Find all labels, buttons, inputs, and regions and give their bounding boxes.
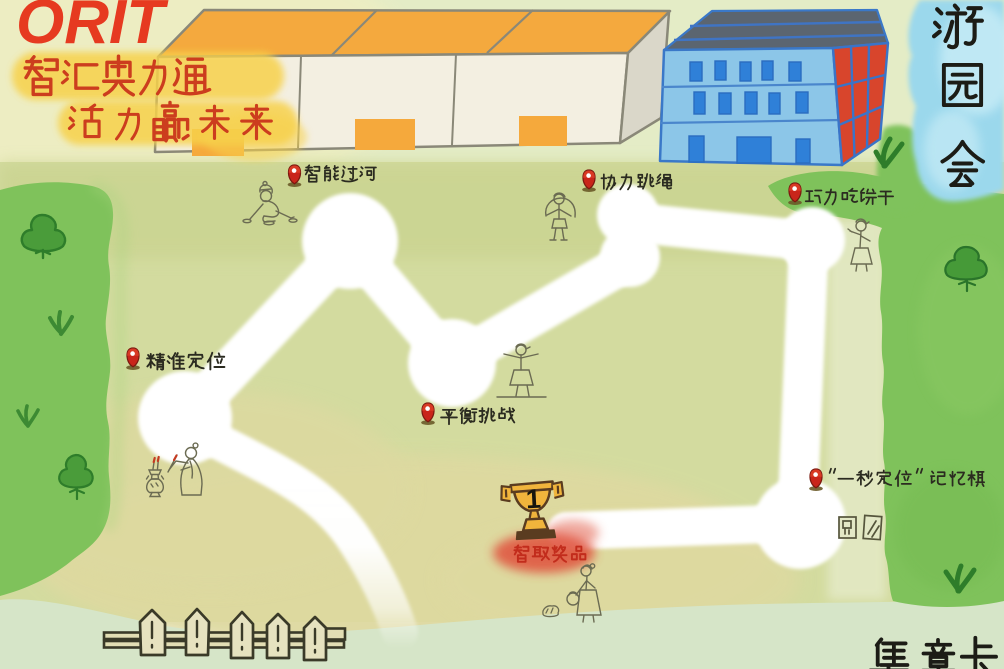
- svg-text:ORIT: ORIT: [16, 0, 169, 57]
- svg-text:1: 1: [525, 484, 542, 515]
